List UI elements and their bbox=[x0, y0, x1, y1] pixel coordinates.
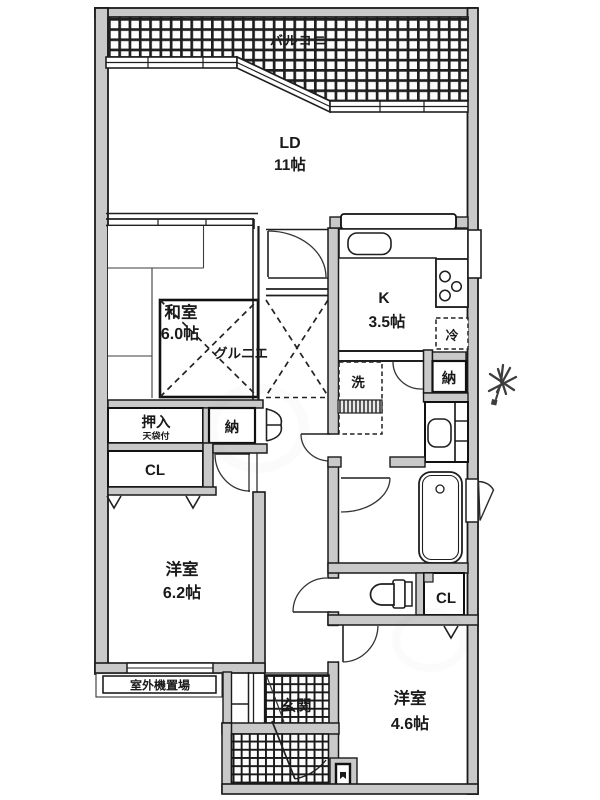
svg-text:室外機置場: 室外機置場 bbox=[130, 679, 190, 693]
svg-text:6.0帖: 6.0帖 bbox=[161, 325, 199, 343]
svg-text:バルコニー: バルコニー bbox=[270, 33, 342, 48]
svg-text:押入: 押入 bbox=[142, 414, 171, 431]
svg-text:玄関: 玄関 bbox=[280, 697, 311, 715]
svg-text:CL: CL bbox=[436, 590, 456, 607]
svg-text:6.2帖: 6.2帖 bbox=[163, 584, 201, 602]
svg-text:4.6帖: 4.6帖 bbox=[391, 715, 429, 733]
svg-text:洗: 洗 bbox=[351, 375, 365, 390]
svg-text:グルニエ: グルニエ bbox=[214, 346, 268, 361]
svg-text:納: 納 bbox=[442, 370, 457, 387]
svg-text:CL: CL bbox=[145, 462, 165, 479]
svg-text:洋室: 洋室 bbox=[394, 689, 427, 708]
svg-text:K: K bbox=[378, 290, 390, 307]
svg-text:11帖: 11帖 bbox=[274, 156, 306, 174]
svg-text:天袋付: 天袋付 bbox=[142, 431, 169, 441]
svg-text:LD: LD bbox=[279, 135, 300, 152]
svg-text:3.5帖: 3.5帖 bbox=[368, 313, 406, 331]
svg-text:冷: 冷 bbox=[445, 328, 458, 343]
svg-text:洋室: 洋室 bbox=[166, 560, 199, 579]
svg-text:納: 納 bbox=[225, 419, 240, 436]
svg-text:和室: 和室 bbox=[165, 303, 198, 322]
